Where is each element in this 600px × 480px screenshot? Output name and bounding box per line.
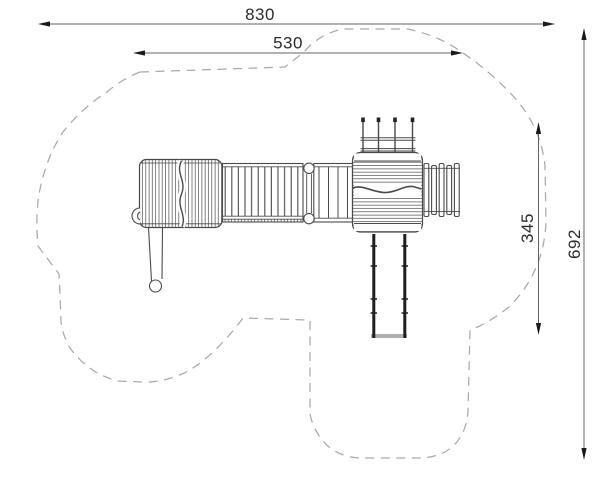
arrow-down-icon [536,323,541,335]
dimension-label-equipment-depth: 345 [518,213,537,243]
ramp [314,164,353,223]
arrow-down-icon [581,448,586,460]
play-counter [132,208,140,224]
dimension-total-depth: 692 [565,28,587,460]
main-tower-roof [353,153,423,233]
dimension-equipment-depth: 345 [518,122,541,335]
slide-rails [374,234,405,338]
left-tower-roof [140,160,223,228]
arrow-right-icon [543,21,555,26]
arrow-left-icon [38,21,50,26]
arrow-up-icon [581,28,586,40]
slide-rail-ticks [371,246,408,313]
bridge [223,164,304,223]
vertical-climber [424,164,460,217]
arrow-up-icon [536,122,541,134]
slide [371,234,408,338]
dimension-label-equipment-width: 530 [273,34,303,53]
climbing-frame [361,118,416,153]
dimension-equipment-width: 530 [133,34,463,56]
playground-plan-drawing: 830 530 345 692 [0,0,600,480]
climbing-frame-caps [361,118,414,123]
post-pair [304,163,314,224]
equipment-group [132,118,460,339]
dimension-label-total-width: 830 [245,5,275,24]
fireman-pole [149,228,163,293]
dimension-total-width: 830 [38,5,555,27]
safety-zone-outline [37,29,546,458]
arrow-left-icon [133,50,145,55]
drawing-canvas: 830 530 345 692 [0,0,600,480]
arrow-right-icon [451,50,463,55]
dimension-label-total-depth: 692 [565,229,584,259]
